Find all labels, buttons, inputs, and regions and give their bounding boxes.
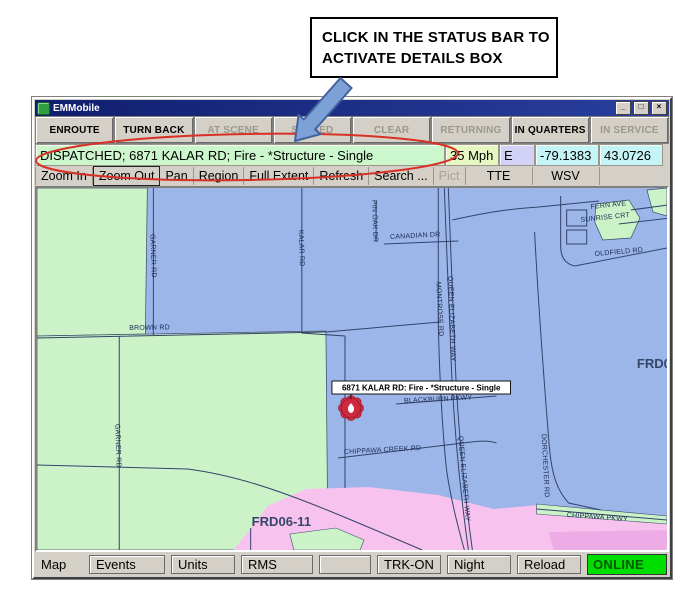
title-bar[interactable]: EMMobile _ □ × (35, 100, 669, 116)
instruction-note: CLICK IN THE STATUS BAR TO ACTIVATE DETA… (310, 17, 558, 78)
blank-button[interactable] (319, 555, 371, 574)
at-scene-button[interactable]: AT SCENE (194, 116, 273, 144)
map-canvas: GARNER RD KALAR RD BROWN RD PIN OAK DR C… (37, 188, 667, 550)
longitude-field[interactable]: -79.1383 (535, 144, 599, 166)
dispatch-status-field[interactable]: DISPATCHED; 6871 KALAR RD; Fire - *Struc… (35, 144, 445, 166)
reload-button[interactable]: Reload (517, 555, 581, 574)
tool-wsv[interactable]: WSV (533, 167, 600, 185)
turn-back-button[interactable]: TURN BACK (114, 116, 193, 144)
status-bar-spacer (663, 144, 669, 166)
tool-zoom-in[interactable]: Zoom In (35, 167, 93, 185)
incident-label-text: 6871 KALAR RD: Fire - *Structure - Singl… (342, 384, 501, 393)
in-service-button[interactable]: IN SERVICE (590, 116, 669, 144)
map-region-magenta (549, 530, 667, 550)
tool-region[interactable]: Region (194, 167, 245, 185)
close-icon[interactable]: × (651, 101, 667, 115)
latitude-field[interactable]: 43.0726 (599, 144, 663, 166)
online-status-badge: ONLINE (587, 554, 667, 575)
status-bar: DISPATCHED; 6871 KALAR RD; Fire - *Struc… (35, 144, 669, 166)
note-line-2: ACTIVATE DETAILS BOX (322, 48, 556, 69)
road-label: BROWN RD (129, 324, 170, 332)
incident-marker-icon[interactable] (338, 396, 363, 421)
road-label: KALAR RD (297, 230, 305, 267)
tool-full-extent[interactable]: Full Extent (244, 167, 314, 185)
speed-field[interactable]: 35 Mph (445, 144, 499, 166)
screenshot-canvas: CLICK IN THE STATUS BAR TO ACTIVATE DETA… (0, 0, 689, 593)
tool-tte[interactable]: TTE (466, 167, 533, 185)
incident-label: 6871 KALAR RD: Fire - *Structure - Singl… (332, 381, 511, 394)
tool-refresh[interactable]: Refresh (314, 167, 369, 185)
unit-status-button-row: ENROUTE TURN BACK AT SCENE STAGED CLEAR … (35, 116, 669, 144)
tool-pan[interactable]: Pan (160, 167, 193, 185)
map-tab-label[interactable]: Map (37, 557, 89, 572)
road-label: PIN OAK DR (370, 200, 378, 243)
clear-button[interactable]: CLEAR (352, 116, 431, 144)
map-region-green-topleft (37, 188, 147, 336)
tool-zoom-out[interactable]: Zoom Out (93, 166, 161, 186)
in-quarters-button[interactable]: IN QUARTERS (511, 116, 590, 144)
night-button[interactable]: Night (447, 555, 511, 574)
maximize-icon[interactable]: □ (633, 101, 649, 115)
tool-search[interactable]: Search ... (369, 167, 434, 185)
app-window: EMMobile _ □ × ENROUTE TURN BACK AT SCEN… (32, 97, 672, 579)
map-view[interactable]: GARNER RD KALAR RD BROWN RD PIN OAK DR C… (35, 186, 669, 552)
minimize-icon[interactable]: _ (615, 101, 631, 115)
zone-label-frd0: FRD0 (637, 356, 667, 371)
rms-button[interactable]: RMS (241, 555, 313, 574)
events-button[interactable]: Events (89, 555, 165, 574)
bottom-bar: Map Events Units RMS TRK-ON Night Reload… (35, 552, 669, 576)
trk-on-button[interactable]: TRK-ON (377, 555, 441, 574)
map-toolbar: Zoom In Zoom Out Pan Region Full Extent … (35, 166, 669, 186)
units-button[interactable]: Units (171, 555, 235, 574)
zone-label-frd06-11: FRD06-11 (252, 514, 311, 529)
app-icon (37, 102, 50, 115)
enroute-button[interactable]: ENROUTE (35, 116, 114, 144)
returning-button[interactable]: RETURNING (431, 116, 510, 144)
note-line-1: CLICK IN THE STATUS BAR TO (322, 27, 556, 48)
staged-button[interactable]: STAGED (273, 116, 352, 144)
heading-field[interactable]: E (499, 144, 535, 166)
window-title: EMMobile (53, 103, 613, 114)
tool-pict[interactable]: Pict (434, 167, 466, 185)
